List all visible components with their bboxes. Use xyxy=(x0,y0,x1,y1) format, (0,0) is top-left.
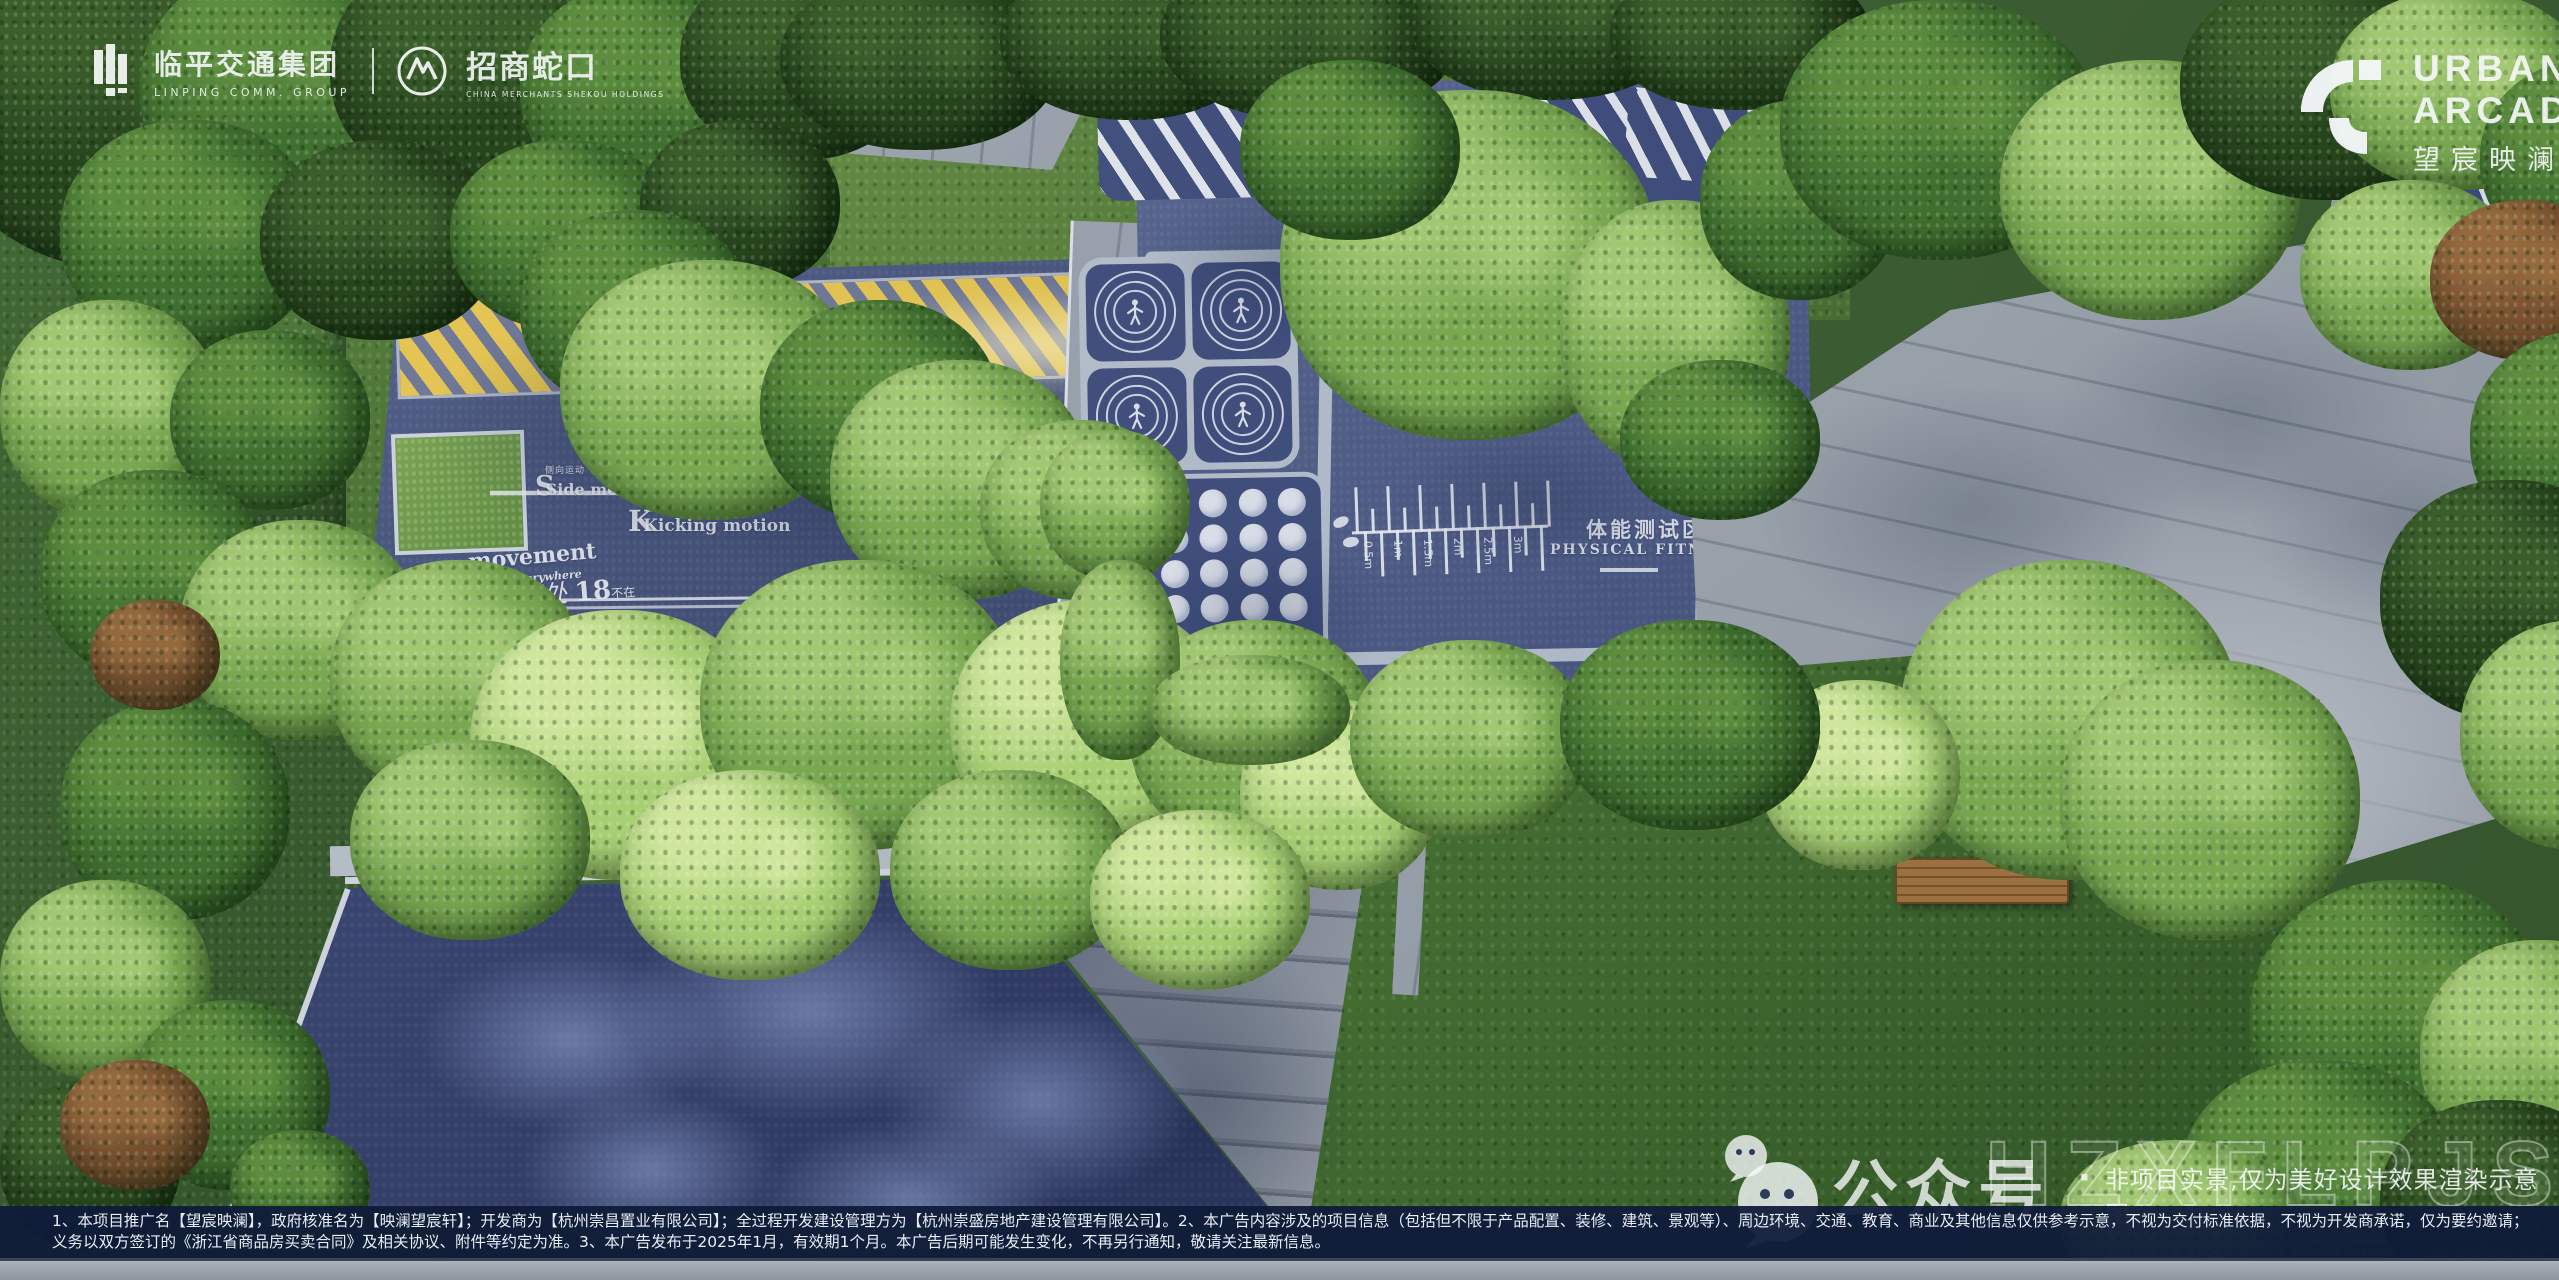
grid-dot xyxy=(1199,489,1227,517)
urban-arcadia-logo-icon xyxy=(2295,48,2399,158)
ruler-tick xyxy=(1354,487,1359,533)
tree xyxy=(1240,60,1460,240)
linping-group-wordmark: 临平交通集团 LINPING COMM. GROUP xyxy=(154,43,350,99)
tree xyxy=(1040,430,1190,580)
ruler-tick xyxy=(1412,529,1417,575)
logo-divider xyxy=(372,48,374,94)
brand-lockup: 临平交通集团 LINPING COMM. GROUP 招商蛇口 CHINA ME… xyxy=(92,42,665,99)
cmsk-logo-icon xyxy=(396,45,448,97)
movement-accent: 18 xyxy=(574,575,613,608)
project-en2: ARCADIA xyxy=(2413,90,2559,132)
cmsk-wordmark: 招商蛇口 CHINA MERCHANTS SHEKOU HOLDINGS xyxy=(466,42,665,99)
target-ring xyxy=(1201,372,1284,455)
exercise-figure-icon xyxy=(1127,401,1147,429)
target-ring xyxy=(1113,290,1158,335)
tree xyxy=(1150,655,1350,765)
target-ring xyxy=(1211,382,1274,445)
disclaimer-bar: 1、本项目推广名【望宸映澜】，政府核准名为【映澜望宸轩】；开发商为【杭州崇昌置业… xyxy=(0,1206,2559,1258)
grid-dot xyxy=(1238,488,1266,516)
ruler-tick xyxy=(1386,486,1391,532)
tree xyxy=(350,740,590,940)
ruler-tick xyxy=(1380,530,1385,576)
cmsk-tagline: CHINA MERCHANTS SHEKOU HOLDINGS xyxy=(466,90,665,99)
tree xyxy=(90,600,220,710)
ruler-tick xyxy=(1371,509,1375,533)
disclaimer-line1: 1、本项目推广名【望宸映澜】，政府核准名为【映澜望宸轩】；开发商为【杭州崇昌置业… xyxy=(52,1211,2519,1232)
exercise-figure-icon xyxy=(1125,298,1145,326)
exercise-figure-icon xyxy=(1232,400,1252,428)
project-en1: URBAN xyxy=(2413,48,2559,90)
tree xyxy=(1090,810,1310,990)
tree xyxy=(1620,360,1820,520)
linping-name: 临平交通集团 xyxy=(154,43,350,83)
tree xyxy=(620,770,880,980)
linping-tagline: LINPING COMM. GROUP xyxy=(154,86,350,99)
fitness-label-underline xyxy=(1600,568,1658,572)
grid-dot xyxy=(1277,488,1305,516)
tree xyxy=(1560,620,1820,830)
linping-group-logo-icon xyxy=(92,44,136,98)
watermark-separator: · xyxy=(2078,1158,2091,1198)
ruler-label: 0.5m xyxy=(1361,541,1375,570)
tree xyxy=(2060,660,2360,940)
project-cn: 望宸映澜 xyxy=(2413,138,2559,177)
cmsk-name: 招商蛇口 xyxy=(466,42,665,87)
aerial-park-render: 0.5m1m1.5m2m2.5m3m 体能测试区 PHYSICAL FITNES… xyxy=(0,0,2559,1280)
target-ring xyxy=(1220,391,1265,436)
project-logo: URBAN ARCADIA 望宸映澜 xyxy=(2295,48,2559,177)
target-ring xyxy=(1104,281,1167,344)
ruler-label: 1m xyxy=(1391,540,1405,558)
disclaimer-line2: 义务以双方签订的《浙江省商品房买卖合同》及相关协议、附件等约定为准。3、本广告发… xyxy=(52,1232,2519,1253)
project-wordmark: URBAN ARCADIA 望宸映澜 xyxy=(2413,48,2559,177)
tree xyxy=(1350,640,1590,840)
tree xyxy=(60,1060,210,1190)
jump-rope-cell xyxy=(1193,365,1293,463)
bottom-pavement-band xyxy=(0,1258,2559,1280)
